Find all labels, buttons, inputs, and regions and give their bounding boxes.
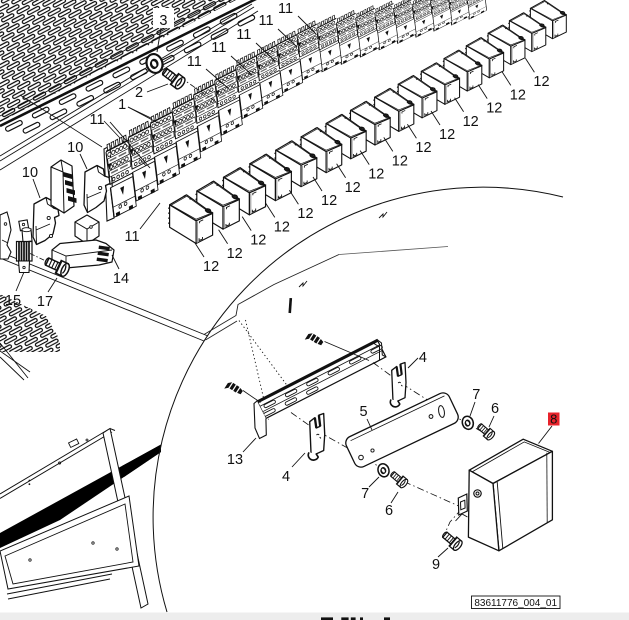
svg-text:11: 11 [258, 13, 273, 29]
svg-text:12: 12 [345, 180, 361, 196]
svg-text:11: 11 [211, 40, 226, 56]
svg-text:12: 12 [297, 206, 313, 222]
svg-text:14: 14 [113, 271, 129, 287]
svg-text:11: 11 [89, 112, 104, 128]
svg-text:12: 12 [533, 74, 549, 90]
svg-text:1: 1 [118, 97, 126, 113]
svg-text:83611776_004_01: 83611776_004_01 [474, 598, 557, 609]
svg-text:11: 11 [236, 27, 251, 43]
svg-text:3: 3 [159, 13, 167, 29]
svg-text:12: 12 [415, 140, 431, 156]
svg-text:12: 12 [368, 167, 384, 183]
svg-text:6: 6 [385, 503, 393, 519]
svg-text:12: 12 [392, 153, 408, 169]
svg-text:4: 4 [282, 469, 290, 485]
svg-text:15: 15 [5, 293, 21, 309]
svg-text:4: 4 [419, 350, 427, 366]
svg-text:17: 17 [37, 294, 53, 310]
svg-text:12: 12 [250, 233, 266, 249]
svg-text:12: 12 [274, 219, 290, 235]
svg-text:12: 12 [463, 114, 479, 130]
svg-text:12: 12 [486, 101, 502, 117]
svg-text:5: 5 [359, 404, 367, 420]
svg-text:10: 10 [22, 165, 38, 181]
svg-text:11: 11 [278, 1, 293, 17]
svg-text:11: 11 [124, 229, 139, 245]
svg-text:9: 9 [432, 557, 440, 573]
svg-text:12: 12 [439, 127, 455, 143]
svg-text:2: 2 [135, 85, 143, 101]
svg-text:6: 6 [491, 401, 499, 417]
svg-text:12: 12 [510, 87, 526, 103]
svg-text:12: 12 [203, 259, 219, 275]
svg-text:10: 10 [67, 140, 83, 156]
svg-text:12: 12 [321, 193, 337, 209]
svg-text:13: 13 [227, 452, 243, 468]
svg-text:7: 7 [472, 387, 480, 403]
svg-text:12: 12 [227, 246, 243, 262]
svg-text:11: 11 [187, 54, 202, 70]
svg-text:8: 8 [550, 412, 557, 427]
svg-text:7: 7 [361, 486, 369, 502]
